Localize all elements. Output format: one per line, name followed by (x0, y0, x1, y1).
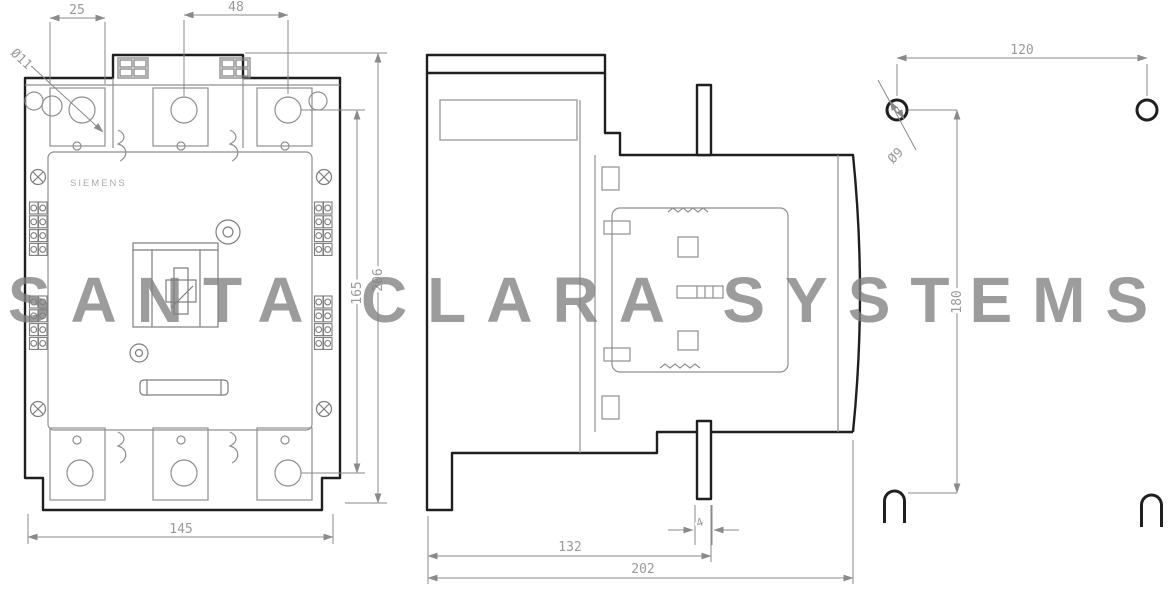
mounting-drill-plan: 120 Ø9 180 (878, 43, 1162, 527)
svg-text:132: 132 (558, 540, 581, 555)
side-internals (440, 100, 838, 453)
contactor-dimension-drawing: SIEMENS (0, 0, 1176, 600)
svg-text:120: 120 (1010, 43, 1033, 58)
mounting-slot-right (1142, 495, 1162, 527)
svg-text:202: 202 (631, 562, 654, 577)
svg-text:4: 4 (694, 515, 705, 530)
svg-text:Ø9: Ø9 (885, 145, 907, 167)
technical-drawing-page: SIEMENS (0, 0, 1176, 600)
svg-text:165: 165 (350, 281, 365, 304)
side-body-outline (427, 73, 853, 510)
front-dim-hole-offset: 25 (50, 3, 105, 84)
side-dim-overall-depth: 202 (428, 440, 853, 584)
svg-text:145: 145 (169, 522, 192, 537)
mounting-slot-left (885, 491, 905, 523)
side-bottom-mounting-tab (697, 421, 711, 499)
svg-text:48: 48 (228, 0, 244, 15)
side-view: 132 202 4 (427, 55, 860, 584)
front-dim-width: 145 (28, 514, 333, 544)
side-top-mounting-tab (697, 85, 711, 155)
svg-text:Ø11: Ø11 (7, 46, 34, 73)
plan-dim-hole-spacing-v: 180 (908, 110, 965, 493)
svg-text:206: 206 (371, 268, 386, 291)
side-dim-tab-width: 4 (668, 505, 739, 545)
plan-dim-hole-spacing-h: 120 (897, 43, 1147, 96)
svg-text:180: 180 (950, 290, 965, 313)
side-dim-body-depth: 132 (428, 505, 711, 584)
svg-text:25: 25 (69, 3, 85, 18)
siemens-label: SIEMENS (70, 178, 127, 189)
mounting-hole-right (1137, 100, 1157, 120)
front-view: SIEMENS (7, 0, 387, 544)
